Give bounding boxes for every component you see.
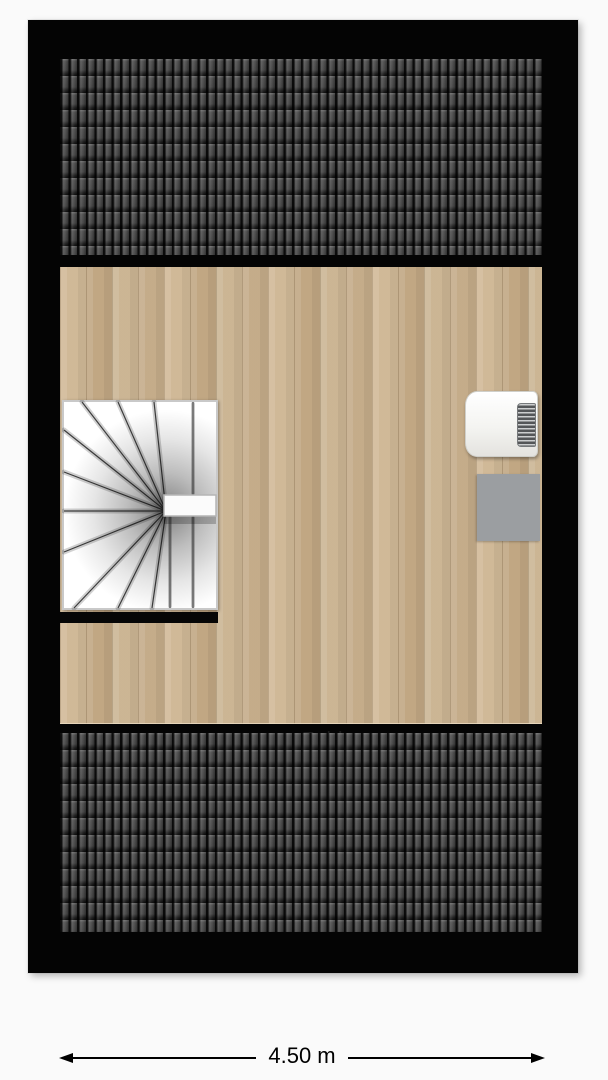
stair-base-wall xyxy=(60,612,218,623)
winder-staircase-icon xyxy=(62,400,218,610)
dimension-line-left xyxy=(73,1057,256,1059)
dimension-line-right xyxy=(348,1057,531,1059)
dimension-label: 4.50 m xyxy=(256,1043,347,1069)
dimension: 4.50 m xyxy=(59,1047,545,1069)
dimension-arrow-left-icon xyxy=(59,1053,73,1063)
appliance-vent-icon xyxy=(517,403,536,447)
floorplan-canvas: Zolder xyxy=(28,20,578,973)
roof-section-bottom xyxy=(60,733,542,932)
floor-mat xyxy=(477,474,540,541)
appliance-unit xyxy=(465,391,538,457)
dimension-arrow-right-icon xyxy=(531,1053,545,1063)
staircase-landing-icon xyxy=(62,400,218,610)
roof-section-top xyxy=(60,59,542,255)
